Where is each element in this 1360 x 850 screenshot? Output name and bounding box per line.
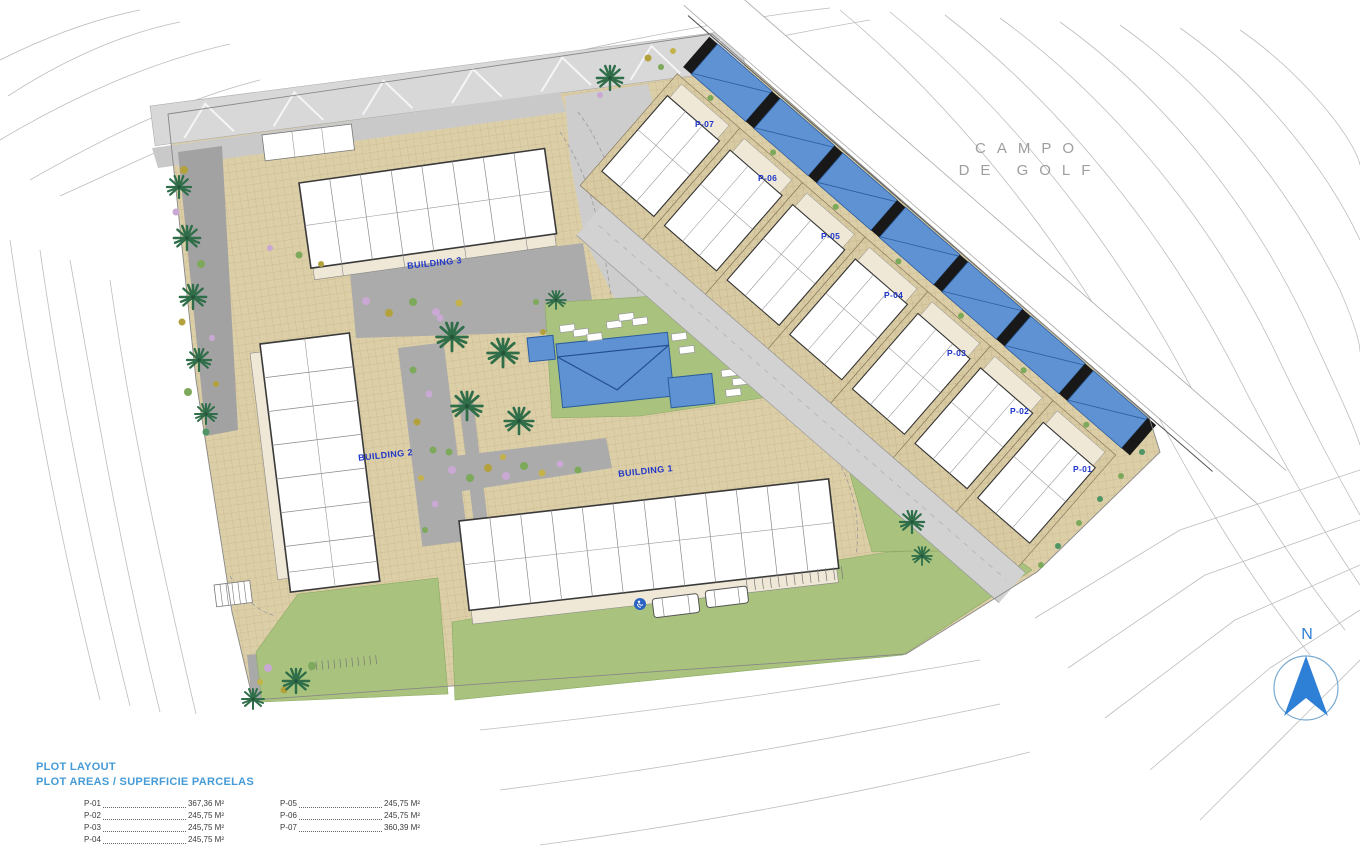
plot-label-p03[interactable]: P-03 [947, 348, 966, 358]
legend-entry: P-01 367,36 M² [84, 798, 224, 810]
golf-course-label-line1: CAMPO [880, 140, 1180, 157]
legend-entry: P-06 245,75 M² [280, 810, 420, 822]
legend-plot-area: 245,75 M² [188, 810, 224, 822]
site-plan: BUILDING 3 BUILDING 2 BUILDING 1 P-07 P-… [0, 0, 1360, 850]
legend-plot-area: 245,75 M² [188, 822, 224, 834]
legend-column-1: P-01 367,36 M² P-02 245,75 M² P-03 245,7… [84, 798, 224, 846]
legend-plot-area: 367,36 M² [188, 798, 224, 810]
legend-entry: P-03 245,75 M² [84, 822, 224, 834]
plot-label-p05[interactable]: P-05 [821, 231, 840, 241]
north-label: N [1292, 626, 1322, 644]
legend: PLOT LAYOUT PLOT AREAS / SUPERFICIE PARC… [36, 760, 476, 846]
legend-plot-id: P-01 [84, 798, 101, 810]
legend-title: PLOT LAYOUT [36, 760, 476, 775]
legend-column-2: P-05 245,75 M² P-06 245,75 M² P-07 360,3… [280, 798, 420, 846]
legend-entry: P-05 245,75 M² [280, 798, 420, 810]
legend-leader [299, 806, 382, 808]
plot-label-p06[interactable]: P-06 [758, 173, 777, 183]
legend-leader [103, 806, 186, 808]
stairs [214, 581, 252, 607]
golf-course-label-line2: DE GOLF [880, 162, 1180, 179]
legend-leader [103, 842, 186, 844]
legend-plot-area: 245,75 M² [188, 834, 224, 846]
main-pool [556, 332, 674, 407]
site-plan-svg [0, 0, 1360, 850]
kids-pool [668, 373, 715, 407]
legend-entry: P-04 245,75 M² [84, 834, 224, 846]
legend-leader [299, 830, 382, 832]
legend-columns: P-01 367,36 M² P-02 245,75 M² P-03 245,7… [84, 798, 476, 846]
legend-plot-area: 245,75 M² [384, 810, 420, 822]
legend-leader [103, 818, 186, 820]
plot-label-p02[interactable]: P-02 [1010, 406, 1029, 416]
legend-plot-id: P-05 [280, 798, 297, 810]
legend-plot-id: P-03 [84, 822, 101, 834]
legend-plot-id: P-02 [84, 810, 101, 822]
legend-subtitle: PLOT AREAS / SUPERFICIE PARCELAS [36, 775, 476, 790]
legend-leader [103, 830, 186, 832]
legend-entry: P-07 360,39 M² [280, 822, 420, 834]
plot-label-p07[interactable]: P-07 [695, 119, 714, 129]
legend-plot-id: P-07 [280, 822, 297, 834]
plunge-pool [527, 335, 555, 362]
north-arrow-icon [1274, 656, 1338, 720]
legend-plot-area: 360,39 M² [384, 822, 420, 834]
legend-leader [299, 818, 382, 820]
disabled-parking-icon [634, 598, 646, 610]
legend-plot-id: P-06 [280, 810, 297, 822]
legend-plot-area: 245,75 M² [384, 798, 420, 810]
plot-label-p04[interactable]: P-04 [884, 290, 903, 300]
plot-label-p01[interactable]: P-01 [1073, 464, 1092, 474]
legend-plot-id: P-04 [84, 834, 101, 846]
legend-entry: P-02 245,75 M² [84, 810, 224, 822]
